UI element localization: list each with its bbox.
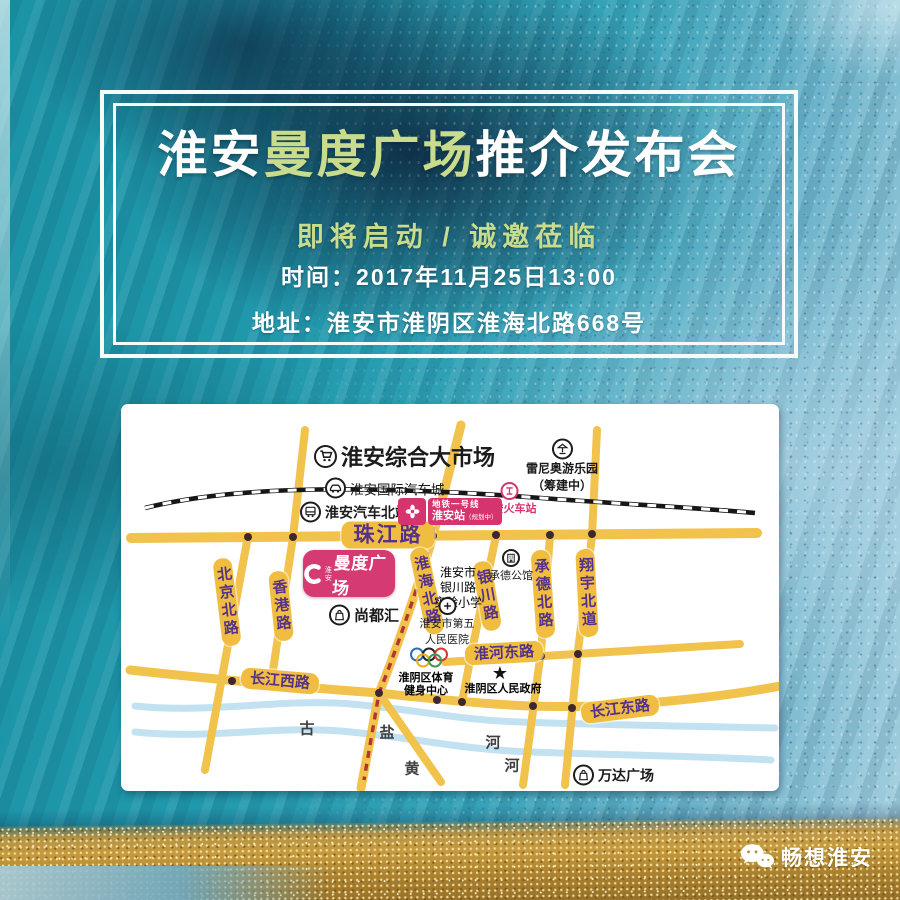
poi-hospital-line1: 淮安市第五 [420,615,475,631]
river-gu-huang [135,703,775,760]
river-char-yan: 盐 [379,722,394,743]
bus-icon [300,502,321,523]
title-prefix: 淮安 [158,127,264,183]
poi-amusement-note: （筹建中） [532,477,592,494]
bottom-left-paint [0,866,330,900]
road-zhujiang [131,533,757,538]
brand-name-label: 曼度广场 [332,549,397,599]
location-map-card: 珠江路 北京北路 香港路 淮海北路 银川路 承德北路 翔宇北道 淮河东路 长江西… [121,404,779,791]
poi-wanda-plaza: 万达广场 [573,765,654,786]
left-edge-highlight [0,0,10,640]
poi-chengde-mansion-label: 承德公馆 [489,567,533,583]
poi-government-label: 淮阴区人民政府 [465,680,542,696]
event-time: 时间：2017年11月25日13:00 [104,258,794,292]
event-poster: 淮安曼度广场推介发布会 即将启动 / 诚邀莅临 时间：2017年11月25日13… [0,0,900,900]
event-address: 地址：淮安市淮阴区淮海北路668号 [104,304,794,338]
river-char-he2: 河 [504,755,519,776]
footer-brand-label: 畅想淮安 [781,842,873,872]
footer-brand: 畅想淮安 [740,842,873,872]
title-suffix: 推介发布会 [476,127,741,183]
poi-bus-station-label: 淮安汽车北站 [325,502,409,522]
poi-wanda-label: 万达广场 [598,765,654,785]
poi-shangduhui: 尚都汇 [329,605,399,626]
brand-city-label: 淮安 [324,566,331,582]
mansion-building-icon [502,549,520,567]
road-label-zhujiang: 珠江路 [342,522,435,549]
mandu-plaza-brand-logo: 淮安 曼度广场 [303,550,395,597]
poi-hospital-line2: 人民医院 [425,631,469,647]
wanda-bag-icon [573,765,594,786]
poi-amusement-park: 雷尼奥游乐园 （筹建中） [526,439,598,494]
event-header-frame: 淮安曼度广场推介发布会 即将启动 / 诚邀莅临 时间：2017年11月25日13… [100,90,798,358]
train-station-icon [500,482,518,500]
poi-amusement-label: 雷尼奥游乐园 [526,460,598,477]
poi-chengde-mansion: 承德公馆 [489,549,533,583]
poi-auto-city: 淮安国际汽车城 [325,478,445,499]
wechat-icon [740,843,774,872]
shopping-bag-icon [329,605,350,626]
poi-bus-station: 淮安汽车北站 [300,502,409,523]
brand-crescent-icon [303,561,322,587]
poi-market: 淮安综合大市场 [314,440,495,472]
river-char-he1: 河 [485,732,500,753]
poi-hospital: 淮安市第五 人民医院 [420,597,475,647]
title-highlight: 曼度广场 [264,127,476,183]
car-icon [325,478,346,499]
olympic-rings-icon [410,648,448,669]
poi-auto-city-label: 淮安国际汽车城 [350,478,445,498]
road-label-huaihe-east: 淮河东路 [464,640,543,665]
hospital-cross-icon [438,597,456,615]
event-subtitle: 即将启动 / 诚邀莅临 [104,215,794,254]
road-hongkong [272,430,305,677]
metro-logo-icon [398,498,426,525]
road-changjiang [130,670,779,706]
poi-market-label: 淮安综合大市场 [341,440,495,472]
poi-sports-line2: 健身中心 [404,682,448,698]
carousel-icon [551,439,572,460]
river-char-huang: 黄 [404,758,419,779]
river-char-gu: 古 [299,718,314,739]
poi-railway-station-label: 淮安火车站 [482,500,537,516]
poi-shangduhui-label: 尚都汇 [354,605,399,626]
shopping-cart-icon [314,445,337,468]
event-title: 淮安曼度广场推介发布会 [104,128,794,183]
